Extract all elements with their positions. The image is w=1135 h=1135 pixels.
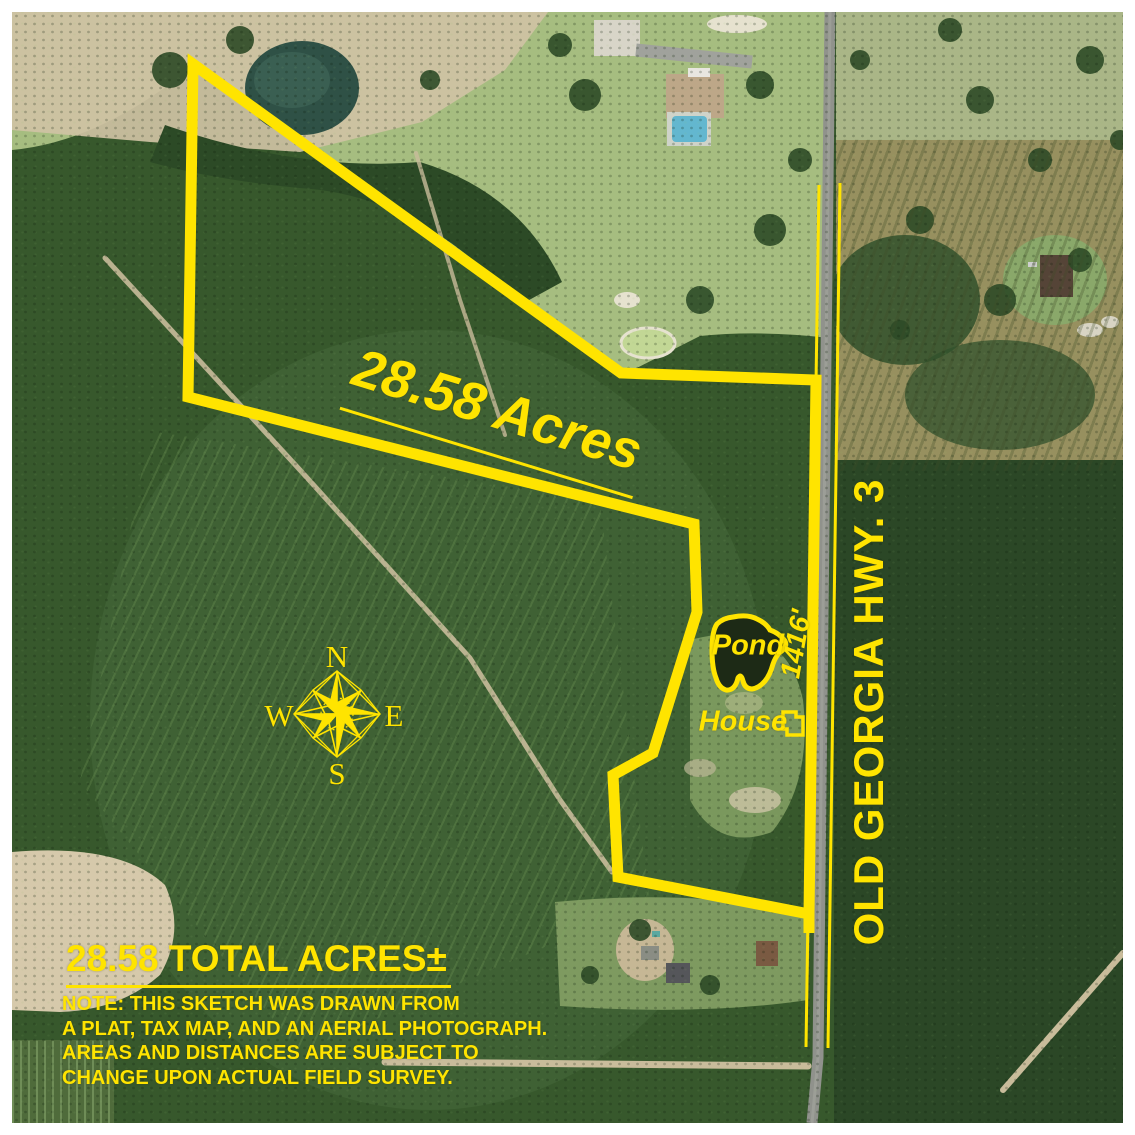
pond-label: Pond xyxy=(712,630,785,663)
sand-trap xyxy=(614,292,640,308)
south-house xyxy=(756,941,778,966)
note-line-4: CHANGE UPON ACTUAL FIELD SURVEY. xyxy=(62,1066,547,1091)
pond-highlight xyxy=(254,52,330,108)
bare-patch xyxy=(1101,316,1119,328)
note-line-1: NOTE: THIS SKETCH WAS DRAWN FROM xyxy=(62,992,547,1017)
east-tree-clump xyxy=(905,340,1095,450)
house-label: House xyxy=(699,706,788,739)
swimming-pool xyxy=(672,116,707,142)
compass-south-label: S xyxy=(328,756,345,792)
total-acres-label: 28.58 TOTAL ACRES± xyxy=(66,938,451,988)
bare-patch xyxy=(1077,323,1103,337)
sand-trap xyxy=(707,15,767,33)
bare-patch xyxy=(729,787,781,813)
compass-east-label: E xyxy=(385,698,404,734)
south-house xyxy=(666,963,690,983)
compass-west-label: W xyxy=(264,698,293,734)
compass-north-label: N xyxy=(326,639,348,675)
survey-note: NOTE: THIS SKETCH WAS DRAWN FROM A PLAT,… xyxy=(62,992,547,1090)
highway-label: OLD GEORGIA HWY. 3 xyxy=(845,479,893,946)
golf-green xyxy=(621,328,675,358)
car xyxy=(1028,262,1037,267)
note-line-2: A PLAT, TAX MAP, AND AN AERIAL PHOTOGRAP… xyxy=(62,1017,547,1042)
east-house xyxy=(1040,255,1073,297)
small-pool xyxy=(652,931,660,937)
shed xyxy=(641,946,659,960)
ruin-structure xyxy=(594,20,640,56)
bare-patch xyxy=(684,759,716,777)
east-field xyxy=(836,12,1123,142)
porch xyxy=(688,68,710,77)
property-sketch-map: 28.58 Acres OLD GEORGIA HWY. 3 1416' Pon… xyxy=(0,0,1135,1135)
east-tree-clump xyxy=(830,235,980,365)
note-line-3: AREAS AND DISTANCES ARE SUBJECT TO xyxy=(62,1041,547,1066)
homestead-roof xyxy=(666,74,724,118)
